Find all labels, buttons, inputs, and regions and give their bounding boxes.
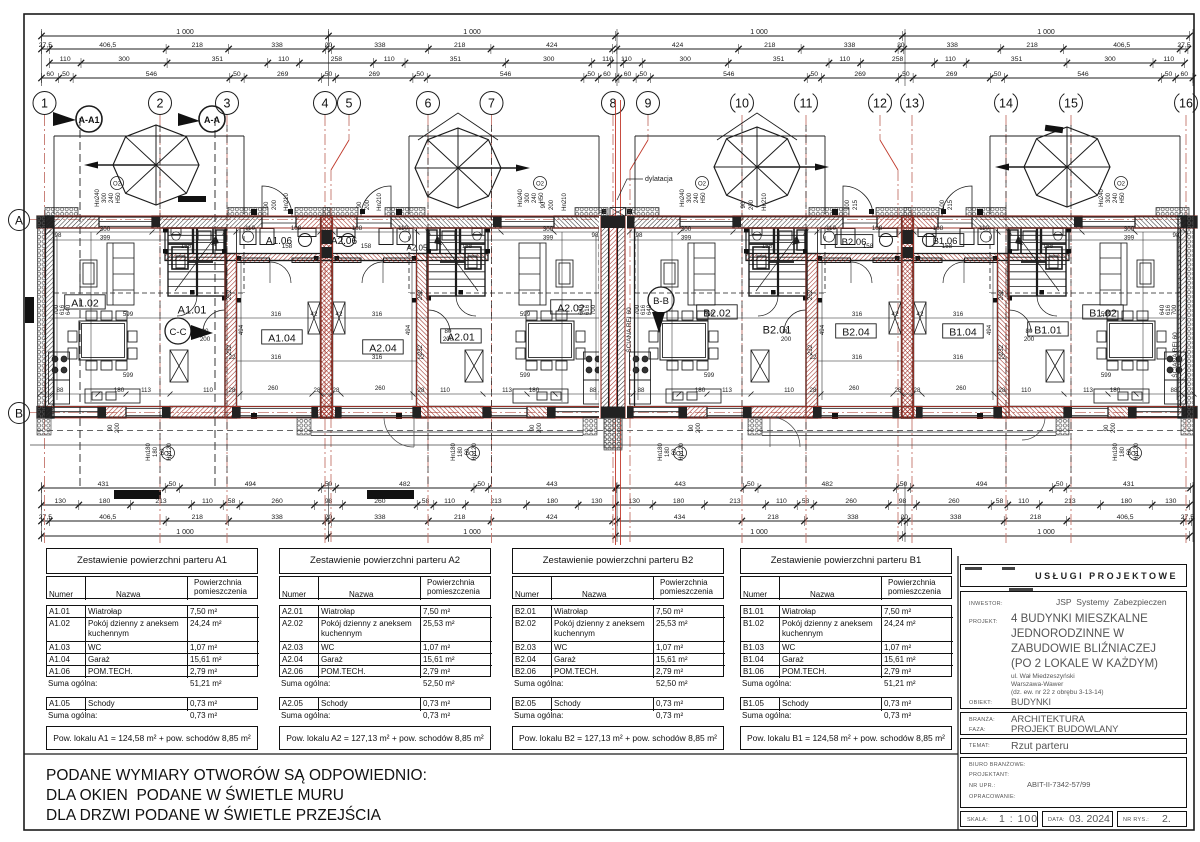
- svg-text:Hn180: Hn180: [1113, 443, 1119, 461]
- svg-text:1 000: 1 000: [176, 29, 194, 36]
- svg-text:443: 443: [546, 481, 558, 488]
- svg-text:110: 110: [979, 225, 989, 232]
- svg-text:406,5: 406,5: [1117, 514, 1134, 521]
- svg-text:A1.02: A1.02: [71, 297, 99, 309]
- svg-text:20: 20: [897, 42, 905, 49]
- svg-text:338: 338: [271, 42, 283, 49]
- svg-text:200: 200: [272, 199, 278, 210]
- svg-text:494: 494: [819, 324, 826, 335]
- svg-text:406,5: 406,5: [99, 514, 116, 521]
- svg-text:42: 42: [336, 311, 343, 318]
- svg-text:20: 20: [325, 42, 333, 49]
- svg-text:158: 158: [762, 243, 773, 250]
- svg-text:80: 80: [783, 328, 790, 335]
- svg-text:316: 316: [953, 354, 964, 361]
- svg-text:158: 158: [361, 243, 372, 250]
- svg-text:H50: H50: [116, 192, 122, 204]
- svg-text:H50: H50: [701, 192, 707, 204]
- svg-text:260: 260: [271, 498, 283, 505]
- svg-text:A-A: A-A: [204, 115, 220, 125]
- svg-text:158: 158: [942, 243, 953, 250]
- svg-text:269: 269: [369, 71, 381, 78]
- svg-text:9: 9: [645, 97, 652, 111]
- svg-text:28: 28: [914, 387, 921, 394]
- svg-text:338: 338: [847, 514, 859, 521]
- svg-text:260: 260: [845, 498, 857, 505]
- svg-text:108: 108: [352, 225, 363, 232]
- svg-text:H50: H50: [1120, 192, 1126, 204]
- svg-text:494: 494: [986, 324, 993, 335]
- svg-text:546: 546: [723, 71, 735, 78]
- svg-text:1 000: 1 000: [1037, 29, 1055, 36]
- svg-text:110: 110: [60, 56, 71, 63]
- svg-text:599: 599: [123, 311, 134, 318]
- svg-text:60: 60: [1181, 71, 1189, 78]
- svg-text:200: 200: [1024, 336, 1035, 343]
- svg-text:260: 260: [956, 385, 967, 392]
- svg-text:A: A: [15, 214, 23, 228]
- svg-text:180: 180: [1121, 498, 1133, 505]
- svg-text:130: 130: [55, 498, 67, 505]
- svg-text:431: 431: [1123, 481, 1135, 488]
- svg-text:80: 80: [1026, 328, 1033, 335]
- svg-text:494: 494: [976, 481, 988, 488]
- svg-text:50: 50: [325, 71, 333, 78]
- svg-text:28: 28: [314, 387, 321, 394]
- svg-text:180: 180: [529, 387, 540, 394]
- svg-text:A1.04: A1.04: [268, 332, 296, 344]
- svg-text:Hn210: Hn210: [562, 193, 568, 211]
- svg-text:110: 110: [440, 387, 450, 394]
- svg-text:260: 260: [948, 498, 960, 505]
- svg-text:158: 158: [181, 243, 192, 250]
- svg-text:300: 300: [687, 192, 693, 203]
- svg-text:O2: O2: [536, 182, 545, 188]
- svg-text:218: 218: [454, 514, 466, 521]
- svg-text:258: 258: [892, 56, 904, 63]
- svg-text:42: 42: [311, 311, 318, 318]
- svg-text:262: 262: [417, 289, 424, 300]
- svg-text:300: 300: [525, 192, 531, 203]
- svg-text:O2: O2: [113, 182, 122, 188]
- svg-text:28: 28: [810, 387, 817, 394]
- svg-text:300: 300: [118, 56, 130, 63]
- svg-text:316: 316: [852, 354, 863, 361]
- svg-text:110: 110: [1018, 498, 1029, 505]
- svg-text:399: 399: [100, 235, 111, 242]
- svg-text:108: 108: [291, 225, 302, 232]
- svg-text:1 000: 1 000: [463, 529, 481, 536]
- svg-text:O2: O2: [1117, 182, 1126, 188]
- svg-text:50: 50: [747, 481, 755, 488]
- svg-text:50: 50: [640, 71, 648, 78]
- svg-text:110: 110: [776, 498, 787, 505]
- svg-text:20: 20: [901, 514, 909, 521]
- svg-text:399: 399: [681, 235, 692, 242]
- svg-text:50: 50: [994, 71, 1002, 78]
- svg-text:599: 599: [520, 311, 531, 318]
- svg-text:Hn240: Hn240: [680, 189, 686, 207]
- svg-text:113: 113: [1083, 387, 1093, 394]
- svg-text:180: 180: [673, 498, 685, 505]
- svg-text:A2.04: A2.04: [369, 342, 397, 354]
- svg-text:Hn240: Hn240: [518, 189, 524, 207]
- svg-text:338: 338: [950, 514, 962, 521]
- svg-text:338: 338: [271, 514, 283, 521]
- svg-text:599: 599: [1101, 311, 1112, 318]
- svg-text:200: 200: [696, 422, 702, 433]
- svg-text:215: 215: [948, 199, 954, 210]
- svg-text:482: 482: [822, 481, 834, 488]
- svg-text:113: 113: [722, 387, 732, 394]
- svg-text:50: 50: [902, 71, 910, 78]
- svg-text:16: 16: [1179, 97, 1193, 111]
- svg-text:494: 494: [238, 324, 245, 335]
- svg-text:200: 200: [365, 199, 371, 210]
- svg-text:180: 180: [458, 446, 464, 457]
- svg-text:406,5: 406,5: [99, 42, 116, 49]
- svg-text:110: 110: [245, 225, 255, 232]
- svg-text:218: 218: [1030, 514, 1042, 521]
- svg-text:200: 200: [115, 422, 121, 433]
- svg-text:260: 260: [849, 385, 860, 392]
- svg-text:180: 180: [547, 498, 559, 505]
- svg-text:640: 640: [646, 304, 653, 315]
- svg-text:3: 3: [224, 97, 231, 111]
- svg-text:351: 351: [450, 56, 462, 63]
- svg-text:98: 98: [592, 232, 599, 239]
- svg-text:58: 58: [228, 498, 236, 505]
- svg-text:599: 599: [1101, 372, 1112, 379]
- svg-text:546: 546: [500, 71, 512, 78]
- svg-text:88: 88: [1171, 387, 1178, 394]
- svg-text:424: 424: [672, 42, 684, 49]
- svg-text:258: 258: [331, 56, 343, 63]
- svg-text:110: 110: [945, 56, 956, 63]
- svg-text:42: 42: [892, 311, 899, 318]
- svg-text:200: 200: [549, 199, 555, 210]
- svg-text:Hp120: Hp120: [167, 443, 173, 461]
- svg-text:218: 218: [192, 42, 204, 49]
- svg-text:5: 5: [346, 97, 353, 111]
- svg-text:Hp120: Hp120: [472, 443, 478, 461]
- svg-text:60: 60: [160, 448, 166, 455]
- svg-text:2: 2: [157, 97, 164, 111]
- svg-text:262: 262: [998, 289, 1005, 300]
- svg-text:50: 50: [477, 481, 485, 488]
- svg-text:640: 640: [578, 304, 585, 315]
- svg-text:6: 6: [425, 97, 432, 111]
- svg-text:90: 90: [689, 424, 695, 431]
- svg-text:338: 338: [374, 514, 386, 521]
- svg-text:dylatacja: dylatacja: [645, 176, 673, 183]
- svg-text:50: 50: [1165, 71, 1173, 78]
- svg-text:240: 240: [532, 192, 538, 203]
- svg-text:269: 269: [946, 71, 958, 78]
- svg-text:338: 338: [947, 42, 959, 49]
- svg-text:180: 180: [114, 387, 125, 394]
- svg-text:110: 110: [398, 225, 408, 232]
- svg-text:50: 50: [811, 71, 819, 78]
- svg-text:110: 110: [826, 225, 836, 232]
- svg-text:700: 700: [590, 304, 597, 315]
- svg-text:10: 10: [735, 97, 749, 111]
- svg-text:1 000: 1 000: [176, 529, 194, 536]
- svg-text:200: 200: [781, 336, 792, 343]
- svg-text:269: 269: [277, 71, 289, 78]
- svg-text:50: 50: [416, 71, 424, 78]
- svg-text:232: 232: [807, 344, 814, 355]
- svg-text:300: 300: [543, 226, 554, 233]
- svg-text:28: 28: [999, 387, 1006, 394]
- svg-text:546: 546: [1077, 71, 1089, 78]
- svg-text:B-B: B-B: [653, 296, 669, 307]
- svg-text:ŚCIANA REI 60: ŚCIANA REI 60: [624, 307, 633, 353]
- svg-text:80: 80: [445, 328, 452, 335]
- svg-text:218: 218: [1026, 42, 1038, 49]
- svg-text:50: 50: [587, 71, 595, 78]
- svg-text:351: 351: [212, 56, 224, 63]
- svg-text:351: 351: [773, 56, 785, 63]
- svg-text:158: 158: [462, 243, 473, 250]
- svg-text:300: 300: [681, 226, 692, 233]
- svg-text:232: 232: [226, 344, 233, 355]
- svg-text:338: 338: [844, 42, 856, 49]
- svg-text:316: 316: [852, 311, 863, 318]
- svg-text:262: 262: [226, 289, 233, 300]
- svg-text:158: 158: [1043, 243, 1054, 250]
- svg-text:200: 200: [1111, 422, 1117, 433]
- svg-text:599: 599: [123, 372, 134, 379]
- svg-text:158: 158: [863, 243, 874, 250]
- svg-text:434: 434: [674, 514, 686, 521]
- svg-text:240: 240: [1113, 192, 1119, 203]
- svg-text:546: 546: [146, 71, 158, 78]
- svg-text:Hn210: Hn210: [762, 193, 768, 211]
- svg-text:7: 7: [488, 97, 495, 111]
- svg-text:158: 158: [282, 243, 293, 250]
- svg-text:Hn210: Hn210: [284, 193, 290, 211]
- svg-text:1 000: 1 000: [750, 529, 768, 536]
- svg-text:443: 443: [674, 481, 686, 488]
- svg-text:1 000: 1 000: [1037, 529, 1055, 536]
- svg-text:80: 80: [202, 328, 209, 335]
- svg-text:180: 180: [153, 446, 159, 457]
- svg-text:180: 180: [1120, 446, 1126, 457]
- svg-text:A1.01: A1.01: [178, 305, 207, 317]
- svg-text:130: 130: [591, 498, 603, 505]
- svg-text:300: 300: [1104, 56, 1116, 63]
- svg-text:200: 200: [537, 422, 543, 433]
- svg-text:616: 616: [584, 304, 591, 315]
- svg-text:Hn210: Hn210: [377, 193, 383, 211]
- svg-text:113: 113: [502, 387, 512, 394]
- svg-text:11: 11: [800, 97, 813, 111]
- svg-text:110: 110: [1163, 56, 1174, 63]
- svg-text:599: 599: [704, 372, 715, 379]
- svg-text:213: 213: [1064, 498, 1076, 505]
- svg-text:110: 110: [444, 498, 455, 505]
- svg-text:406,5: 406,5: [1113, 42, 1130, 49]
- svg-text:338: 338: [374, 42, 386, 49]
- svg-text:60: 60: [465, 448, 471, 455]
- svg-text:Hp120: Hp120: [679, 443, 685, 461]
- svg-text:27,5: 27,5: [39, 42, 52, 49]
- svg-text:200: 200: [443, 336, 454, 343]
- svg-text:27,5: 27,5: [1177, 42, 1190, 49]
- svg-text:13: 13: [905, 97, 919, 111]
- svg-text:C-C: C-C: [170, 327, 187, 338]
- svg-text:180: 180: [1110, 387, 1121, 394]
- svg-text:100: 100: [845, 199, 851, 210]
- svg-text:98: 98: [55, 232, 62, 239]
- svg-text:90: 90: [541, 201, 547, 208]
- svg-text:300: 300: [680, 56, 692, 63]
- svg-text:4: 4: [322, 97, 329, 111]
- svg-text:113: 113: [141, 387, 151, 394]
- svg-text:B1.01: B1.01: [1034, 324, 1062, 336]
- svg-text:98: 98: [899, 498, 907, 505]
- svg-text:Hn240: Hn240: [95, 189, 101, 207]
- svg-text:50: 50: [169, 481, 177, 488]
- svg-text:110: 110: [1021, 387, 1031, 394]
- svg-text:213: 213: [490, 498, 502, 505]
- svg-text:130: 130: [1165, 498, 1177, 505]
- svg-text:316: 316: [271, 354, 282, 361]
- svg-text:Hn180: Hn180: [451, 443, 457, 461]
- svg-text:108: 108: [933, 225, 944, 232]
- svg-text:Hn180: Hn180: [146, 443, 152, 461]
- svg-text:28: 28: [418, 387, 425, 394]
- svg-text:300: 300: [543, 56, 555, 63]
- svg-text:27,5: 27,5: [1181, 514, 1194, 521]
- svg-text:88: 88: [590, 387, 597, 394]
- svg-text:300: 300: [1124, 226, 1135, 233]
- svg-text:27,5: 27,5: [39, 514, 52, 521]
- svg-text:260: 260: [268, 385, 279, 392]
- svg-text:700: 700: [1171, 304, 1178, 315]
- svg-text:1 000: 1 000: [463, 29, 481, 36]
- svg-text:218: 218: [192, 514, 204, 521]
- svg-text:616: 616: [1165, 304, 1172, 315]
- svg-text:300: 300: [100, 226, 111, 233]
- svg-text:180: 180: [99, 498, 111, 505]
- svg-text:316: 316: [271, 311, 282, 318]
- svg-text:88: 88: [638, 387, 645, 394]
- svg-text:A2.05: A2.05: [407, 244, 428, 253]
- svg-text:1 000: 1 000: [750, 29, 768, 36]
- svg-text:215: 215: [853, 199, 859, 210]
- svg-text:431: 431: [98, 481, 110, 488]
- svg-text:110: 110: [202, 498, 213, 505]
- svg-text:98: 98: [636, 232, 643, 239]
- svg-text:494: 494: [245, 481, 257, 488]
- svg-text:60: 60: [624, 71, 632, 78]
- svg-text:60: 60: [1127, 448, 1133, 455]
- svg-text:300: 300: [1106, 192, 1112, 203]
- svg-text:180: 180: [665, 446, 671, 457]
- svg-text:12: 12: [873, 97, 887, 111]
- svg-text:180: 180: [695, 387, 706, 394]
- svg-text:60: 60: [603, 71, 611, 78]
- svg-text:110: 110: [203, 387, 213, 394]
- svg-text:O2: O2: [698, 182, 707, 188]
- svg-text:269: 269: [854, 71, 866, 78]
- svg-text:100: 100: [940, 199, 946, 210]
- svg-text:58: 58: [996, 498, 1004, 505]
- svg-text:232: 232: [998, 344, 1005, 355]
- svg-text:60: 60: [672, 448, 678, 455]
- svg-text:316: 316: [372, 354, 383, 361]
- svg-text:Hn240: Hn240: [1099, 189, 1105, 207]
- svg-text:50: 50: [1056, 481, 1064, 488]
- svg-text:240: 240: [694, 192, 700, 203]
- svg-text:399: 399: [543, 235, 554, 242]
- svg-text:640: 640: [1159, 304, 1166, 315]
- svg-text:351: 351: [1011, 56, 1023, 63]
- svg-text:Hp120: Hp120: [1134, 443, 1140, 461]
- svg-text:110: 110: [784, 387, 794, 394]
- svg-text:640: 640: [65, 304, 72, 315]
- svg-text:213: 213: [729, 498, 741, 505]
- svg-text:90: 90: [264, 201, 270, 208]
- svg-text:260: 260: [375, 385, 386, 392]
- svg-text:28: 28: [895, 387, 902, 394]
- svg-text:15: 15: [1064, 97, 1078, 111]
- svg-text:60: 60: [46, 71, 54, 78]
- svg-text:240: 240: [109, 192, 115, 203]
- svg-text:599: 599: [704, 311, 715, 318]
- svg-text:28: 28: [229, 387, 236, 394]
- svg-text:232: 232: [417, 344, 424, 355]
- svg-text:110: 110: [839, 56, 850, 63]
- svg-text:98: 98: [1173, 232, 1180, 239]
- svg-text:424: 424: [546, 514, 558, 521]
- svg-text:482: 482: [399, 481, 411, 488]
- svg-text:B1.04: B1.04: [949, 326, 977, 338]
- svg-text:ŚCIANA REI 60: ŚCIANA REI 60: [1170, 332, 1179, 378]
- svg-text:399: 399: [1124, 235, 1135, 242]
- svg-text:316: 316: [372, 311, 383, 318]
- svg-text:300: 300: [102, 192, 108, 203]
- svg-text:218: 218: [767, 514, 779, 521]
- svg-text:50: 50: [900, 481, 908, 488]
- svg-text:A2.06: A2.06: [331, 236, 358, 247]
- svg-text:90: 90: [1104, 424, 1110, 431]
- svg-text:218: 218: [454, 42, 466, 49]
- svg-text:42: 42: [917, 311, 924, 318]
- svg-text:599: 599: [520, 372, 531, 379]
- svg-text:90: 90: [108, 424, 114, 431]
- svg-text:28: 28: [333, 387, 340, 394]
- svg-text:1: 1: [41, 97, 48, 111]
- svg-text:110: 110: [621, 56, 632, 63]
- svg-text:108: 108: [872, 225, 883, 232]
- svg-text:494: 494: [405, 324, 412, 335]
- svg-text:90: 90: [357, 201, 363, 208]
- svg-text:Hn180: Hn180: [658, 443, 664, 461]
- svg-text:200: 200: [749, 199, 755, 210]
- svg-text:200: 200: [200, 336, 211, 343]
- svg-text:110: 110: [384, 56, 395, 63]
- svg-text:B2.04: B2.04: [842, 326, 870, 338]
- svg-text:A-A1: A-A1: [78, 115, 99, 125]
- svg-text:218: 218: [764, 42, 776, 49]
- svg-text:424: 424: [546, 42, 558, 49]
- svg-text:14: 14: [999, 97, 1013, 111]
- svg-text:90: 90: [741, 201, 747, 208]
- svg-text:B: B: [15, 407, 23, 421]
